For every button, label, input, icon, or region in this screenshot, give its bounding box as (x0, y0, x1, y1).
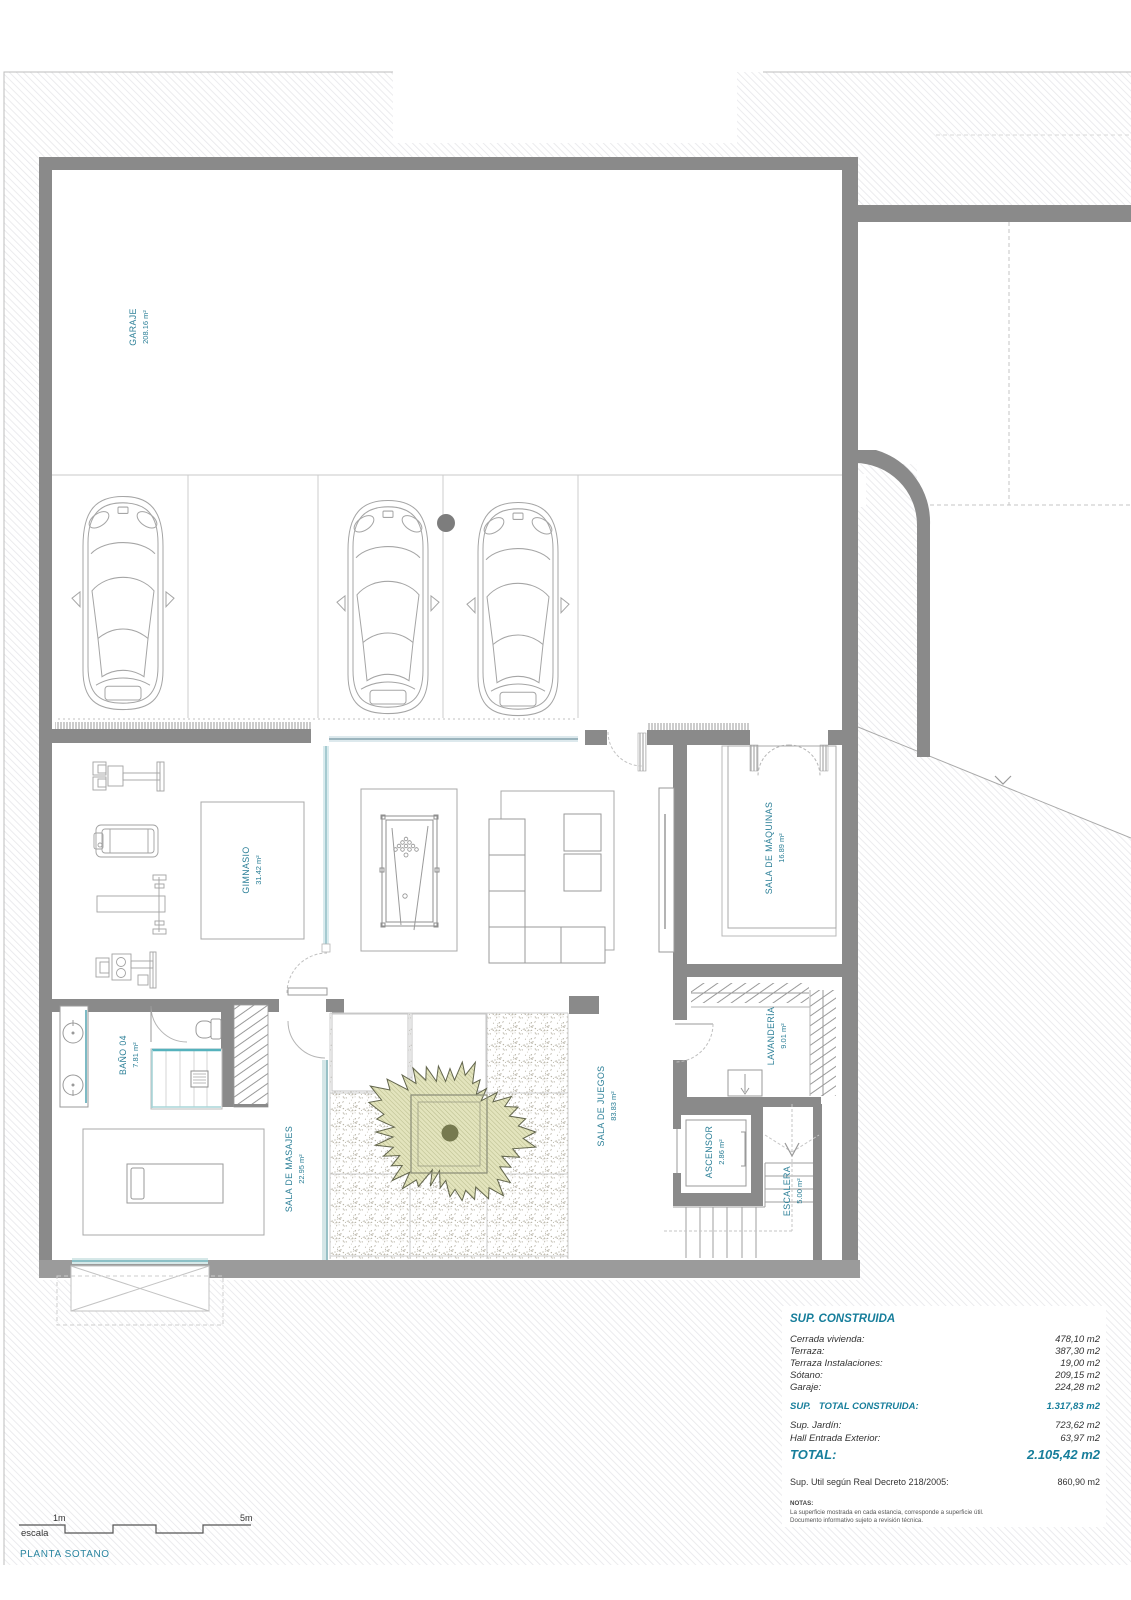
svg-text:TOTAL:: TOTAL: (790, 1447, 836, 1462)
svg-text:31.42 m²: 31.42 m² (254, 855, 263, 885)
svg-text:escala: escala (21, 1528, 49, 1539)
svg-text:GARAJE: GARAJE (128, 308, 138, 346)
svg-text:224,28 m2: 224,28 m2 (1054, 1382, 1101, 1393)
svg-text:22.95 m²: 22.95 m² (297, 1154, 306, 1184)
svg-text:ESCALERA: ESCALERA (782, 1166, 792, 1216)
svg-text:BAÑO 04: BAÑO 04 (118, 1035, 128, 1075)
svg-text:PLANTA SOTANO: PLANTA SOTANO (20, 1549, 110, 1560)
svg-text:La superficie mostrada en cada: La superficie mostrada en cada estancia,… (790, 1509, 984, 1516)
svg-text:Sup. Jardín:: Sup. Jardín: (790, 1420, 842, 1431)
svg-text:LAVANDERÍA: LAVANDERÍA (766, 1007, 776, 1065)
svg-text:SALA DE MÁQUINAS: SALA DE MÁQUINAS (764, 802, 774, 894)
svg-text:Hall Entrada Exterior:: Hall Entrada Exterior: (790, 1433, 881, 1444)
svg-text:16.89 m²: 16.89 m² (777, 833, 786, 863)
svg-text:NOTAS:: NOTAS: (790, 1500, 813, 1507)
svg-text:5m: 5m (240, 1513, 253, 1523)
svg-text:Garaje:: Garaje: (790, 1382, 822, 1393)
svg-text:SALA DE MASAJES: SALA DE MASAJES (284, 1126, 294, 1212)
svg-text:ASCENSOR: ASCENSOR (704, 1126, 714, 1179)
svg-text:83.83 m²: 83.83 m² (609, 1091, 618, 1121)
svg-text:Terraza:: Terraza: (790, 1346, 825, 1357)
svg-text:860,90 m2: 860,90 m2 (1057, 1477, 1100, 1487)
svg-text:478,10 m2: 478,10 m2 (1055, 1334, 1101, 1345)
svg-text:2.86 m²: 2.86 m² (717, 1139, 726, 1165)
svg-text:SUP. CONSTRUIDA: SUP. CONSTRUIDA (790, 1313, 895, 1325)
svg-text:Cerrada vivienda:: Cerrada vivienda: (790, 1334, 865, 1345)
svg-text:19,00 m2: 19,00 m2 (1060, 1358, 1100, 1369)
svg-text:1.317,83 m2: 1.317,83 m2 (1047, 1401, 1101, 1412)
svg-text:723,62 m2: 723,62 m2 (1055, 1420, 1101, 1431)
svg-text:GIMNASIO: GIMNASIO (241, 846, 251, 893)
svg-text:Sótano:: Sótano: (790, 1370, 823, 1381)
svg-text:208.16 m²: 208.16 m² (141, 310, 150, 344)
svg-text:Documento informativo sujeto a: Documento informativo sujeto a revisión … (790, 1517, 923, 1524)
svg-text:SALA DE JUEGOS: SALA DE JUEGOS (596, 1066, 606, 1147)
svg-text:7.81 m²: 7.81 m² (131, 1042, 140, 1068)
svg-text:Sup. Util según Real Decreto 2: Sup. Util según Real Decreto 218/2005: (790, 1477, 949, 1487)
svg-text:SUP. TOTAL CONSTRUIDA:: SUP. TOTAL CONSTRUIDA: (790, 1401, 919, 1412)
svg-text:9.01 m²: 9.01 m² (779, 1023, 788, 1049)
svg-text:5.00 m²: 5.00 m² (795, 1178, 804, 1204)
svg-text:Terraza Instalaciones:: Terraza Instalaciones: (790, 1358, 883, 1369)
svg-text:387,30 m2: 387,30 m2 (1055, 1346, 1101, 1357)
svg-text:1m: 1m (53, 1513, 66, 1523)
svg-text:2.105,42 m2: 2.105,42 m2 (1026, 1447, 1101, 1462)
svg-text:63,97 m2: 63,97 m2 (1060, 1433, 1100, 1444)
svg-text:209,15 m2: 209,15 m2 (1054, 1370, 1101, 1381)
